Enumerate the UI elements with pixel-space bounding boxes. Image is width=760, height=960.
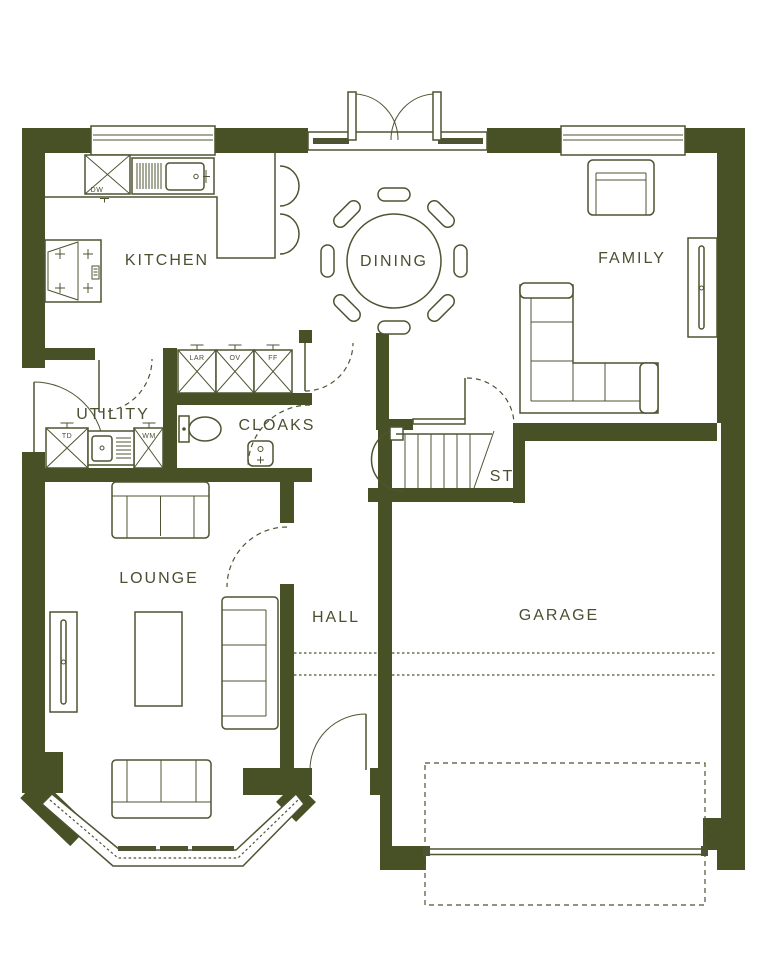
tv-unit [50, 612, 77, 712]
label-oven: OV [229, 355, 240, 362]
cloaks-room [179, 405, 310, 467]
room-label-stairs: ST [490, 468, 514, 485]
vent-icons [191, 345, 280, 350]
sofa-bay [112, 760, 211, 818]
stair-treads [405, 434, 470, 488]
room-label-dining: DINING [360, 253, 428, 270]
label-larder: LAR [189, 355, 204, 362]
wall-segment [717, 848, 745, 870]
chair-icon [321, 245, 334, 277]
chair-icon [425, 198, 457, 230]
door-swing-arc [305, 343, 353, 391]
door-swing-arc [467, 378, 514, 425]
wall-segment [513, 423, 717, 441]
armchair [588, 160, 654, 215]
family-window [561, 126, 685, 155]
garage-door-dashed-outline [425, 763, 705, 905]
wc-bowl [189, 417, 221, 441]
tv-unit [688, 238, 717, 337]
wall-segment [487, 128, 563, 153]
door-leaf [348, 92, 356, 140]
sofa-top [112, 482, 209, 538]
dining-hall-door [305, 343, 353, 391]
room-label-utility: UTILITY [76, 406, 150, 423]
wall-segment [177, 393, 312, 405]
wc-button [182, 427, 186, 431]
chair-icon [425, 292, 457, 324]
chair-icon [378, 321, 410, 334]
wall-segment [368, 488, 525, 502]
hob-unit [45, 240, 101, 302]
floorplan-drawing: KITCHEN DINING FAMILY UTILITY CLOAKS ST … [0, 0, 760, 960]
wall-segment [243, 768, 312, 795]
wall-segment [299, 330, 312, 343]
door-swing-arc [227, 527, 287, 587]
wall-segment [45, 468, 312, 482]
family-door [413, 378, 514, 425]
bay-mullion [192, 846, 234, 851]
lounge-door [227, 527, 287, 587]
wall-segment [370, 768, 392, 795]
room-label-hall: HALL [312, 609, 360, 626]
wall-segment [376, 333, 389, 430]
wall-segment [280, 468, 294, 523]
wall-segment [380, 793, 392, 853]
wall-segment [213, 128, 308, 153]
label-washing-machine: WM [142, 433, 155, 440]
garage-door-post [423, 846, 430, 856]
door-swing-arc [99, 359, 152, 412]
tall-units [178, 345, 292, 393]
chair-icon [454, 245, 467, 277]
door-frame [413, 419, 465, 424]
corner-sofa [520, 283, 658, 413]
room-label-cloaks: CLOAKS [239, 417, 316, 434]
label-fridge-freezer: FF [268, 355, 278, 362]
utility-sink [88, 431, 134, 465]
stool-icon [280, 166, 299, 206]
valve-icon [100, 199, 109, 203]
lounge-room [50, 482, 278, 818]
wall-segment [721, 423, 745, 820]
sidelight-glazing [313, 138, 349, 144]
door-swing-arc [310, 714, 366, 770]
chair-icon [378, 188, 410, 201]
room-label-family: FAMILY [598, 250, 666, 267]
wall-segment [22, 452, 45, 793]
wall-segment [380, 846, 426, 870]
bay-mullion [160, 846, 188, 851]
kitchen-sink [132, 158, 214, 194]
floorplan-page: KITCHEN DINING FAMILY UTILITY CLOAKS ST … [0, 0, 760, 960]
room-label-lounge: LOUNGE [119, 570, 199, 587]
sink-bowl [92, 436, 112, 461]
room-label-kitchen: KITCHEN [125, 252, 209, 269]
kitchen-utility-door [99, 359, 152, 412]
door-leaf [433, 92, 441, 140]
coffee-table [135, 612, 182, 706]
wall-segment [22, 128, 45, 368]
bay-mullion [118, 846, 156, 851]
front-door [310, 714, 366, 770]
chair-icon [331, 292, 363, 324]
kitchen-window [91, 126, 215, 155]
wall-segment [280, 584, 294, 768]
label-tumble-dryer: TD [62, 433, 72, 440]
label-dishwasher: DW [91, 187, 104, 194]
wall-segment [45, 752, 63, 793]
wall-segment [163, 348, 177, 468]
wall-segment [45, 348, 95, 360]
sofa-right [222, 597, 278, 729]
overhead-dashed-lines [294, 653, 717, 675]
french-doors [308, 92, 487, 150]
garage-door-post [701, 846, 708, 856]
family-room [520, 160, 717, 413]
wall-segment [703, 818, 745, 850]
cooker-box [45, 240, 101, 302]
chair-icon [331, 198, 363, 230]
room-label-garage: GARAGE [519, 607, 599, 624]
dishwasher-unit [85, 155, 130, 203]
garage-room [423, 763, 708, 905]
stool-icon [280, 214, 299, 254]
sidelight-glazing [438, 138, 483, 144]
wall-segment [717, 128, 745, 423]
